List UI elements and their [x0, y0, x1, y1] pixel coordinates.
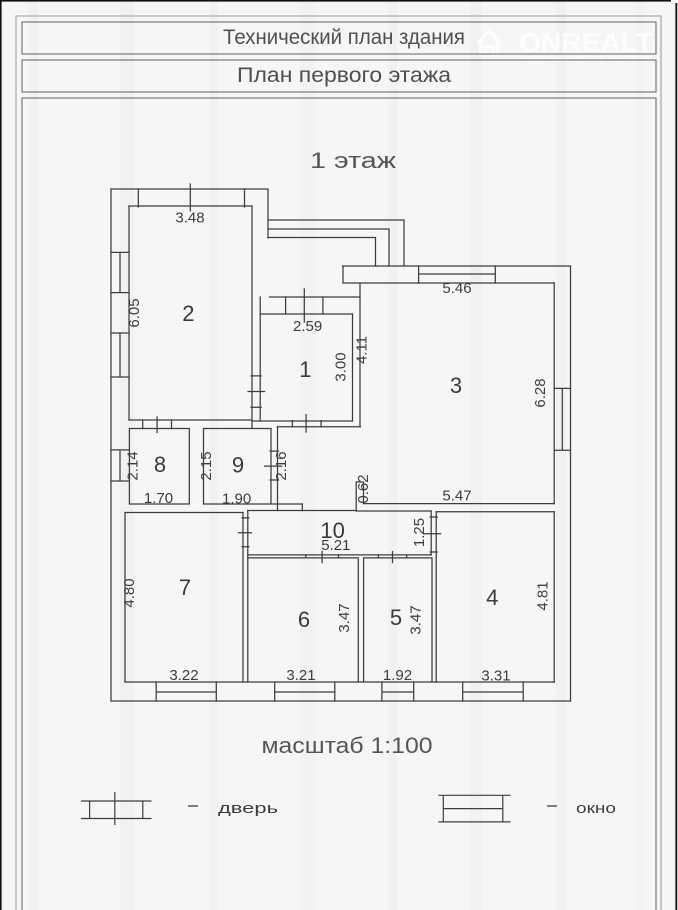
svg-text:3.47: 3.47 [408, 605, 425, 634]
svg-text:4: 4 [486, 585, 498, 610]
svg-text:Технический план здания: Технический план здания [223, 26, 465, 49]
svg-text:6.05: 6.05 [126, 298, 143, 327]
svg-text:4.11: 4.11 [354, 336, 371, 364]
svg-text:1.70: 1.70 [144, 490, 173, 507]
svg-text:2: 2 [182, 301, 194, 326]
svg-text:9: 9 [232, 453, 244, 478]
svg-text:5.21: 5.21 [321, 537, 350, 554]
svg-text:НЕДВИЖИМОСТЬ ОНЛАЙН: НЕДВИЖИМОСТЬ ОНЛАЙН [519, 55, 651, 64]
svg-text:3.22: 3.22 [169, 667, 198, 684]
svg-text:2.14: 2.14 [125, 451, 142, 480]
svg-text:3.31: 3.31 [481, 668, 510, 685]
svg-text:0.62: 0.62 [355, 474, 372, 503]
svg-text:2.59: 2.59 [293, 318, 322, 335]
svg-text:6: 6 [298, 607, 310, 632]
svg-text:1.90: 1.90 [222, 491, 251, 508]
svg-text:3.00: 3.00 [333, 352, 350, 381]
svg-text:6.28: 6.28 [532, 378, 549, 407]
svg-text:План первого этажа: План первого этажа [237, 64, 451, 87]
svg-text:5.46: 5.46 [442, 280, 471, 297]
svg-text:8: 8 [154, 452, 166, 477]
svg-text:1: 1 [299, 357, 311, 382]
svg-text:4.81: 4.81 [535, 581, 552, 610]
svg-text:3.48: 3.48 [175, 210, 204, 227]
svg-text:7: 7 [179, 575, 191, 600]
svg-text:5: 5 [390, 605, 402, 630]
svg-text:4.80: 4.80 [121, 578, 138, 607]
svg-text:1 этаж: 1 этаж [310, 148, 396, 173]
svg-text:5.47: 5.47 [442, 488, 471, 505]
svg-text:дверь: дверь [218, 800, 278, 817]
svg-text:1.92: 1.92 [383, 667, 412, 684]
svg-text:3: 3 [450, 373, 462, 398]
svg-text:окно: окно [576, 800, 616, 817]
svg-text:2.16: 2.16 [273, 451, 290, 480]
svg-text:1.25: 1.25 [411, 518, 428, 547]
svg-text:3.47: 3.47 [336, 603, 353, 632]
svg-text:2.15: 2.15 [198, 451, 215, 480]
svg-text:3.21: 3.21 [286, 667, 315, 684]
svg-text:ONREALT: ONREALT [519, 27, 653, 58]
svg-text:масштаб 1:100: масштаб 1:100 [262, 733, 433, 758]
